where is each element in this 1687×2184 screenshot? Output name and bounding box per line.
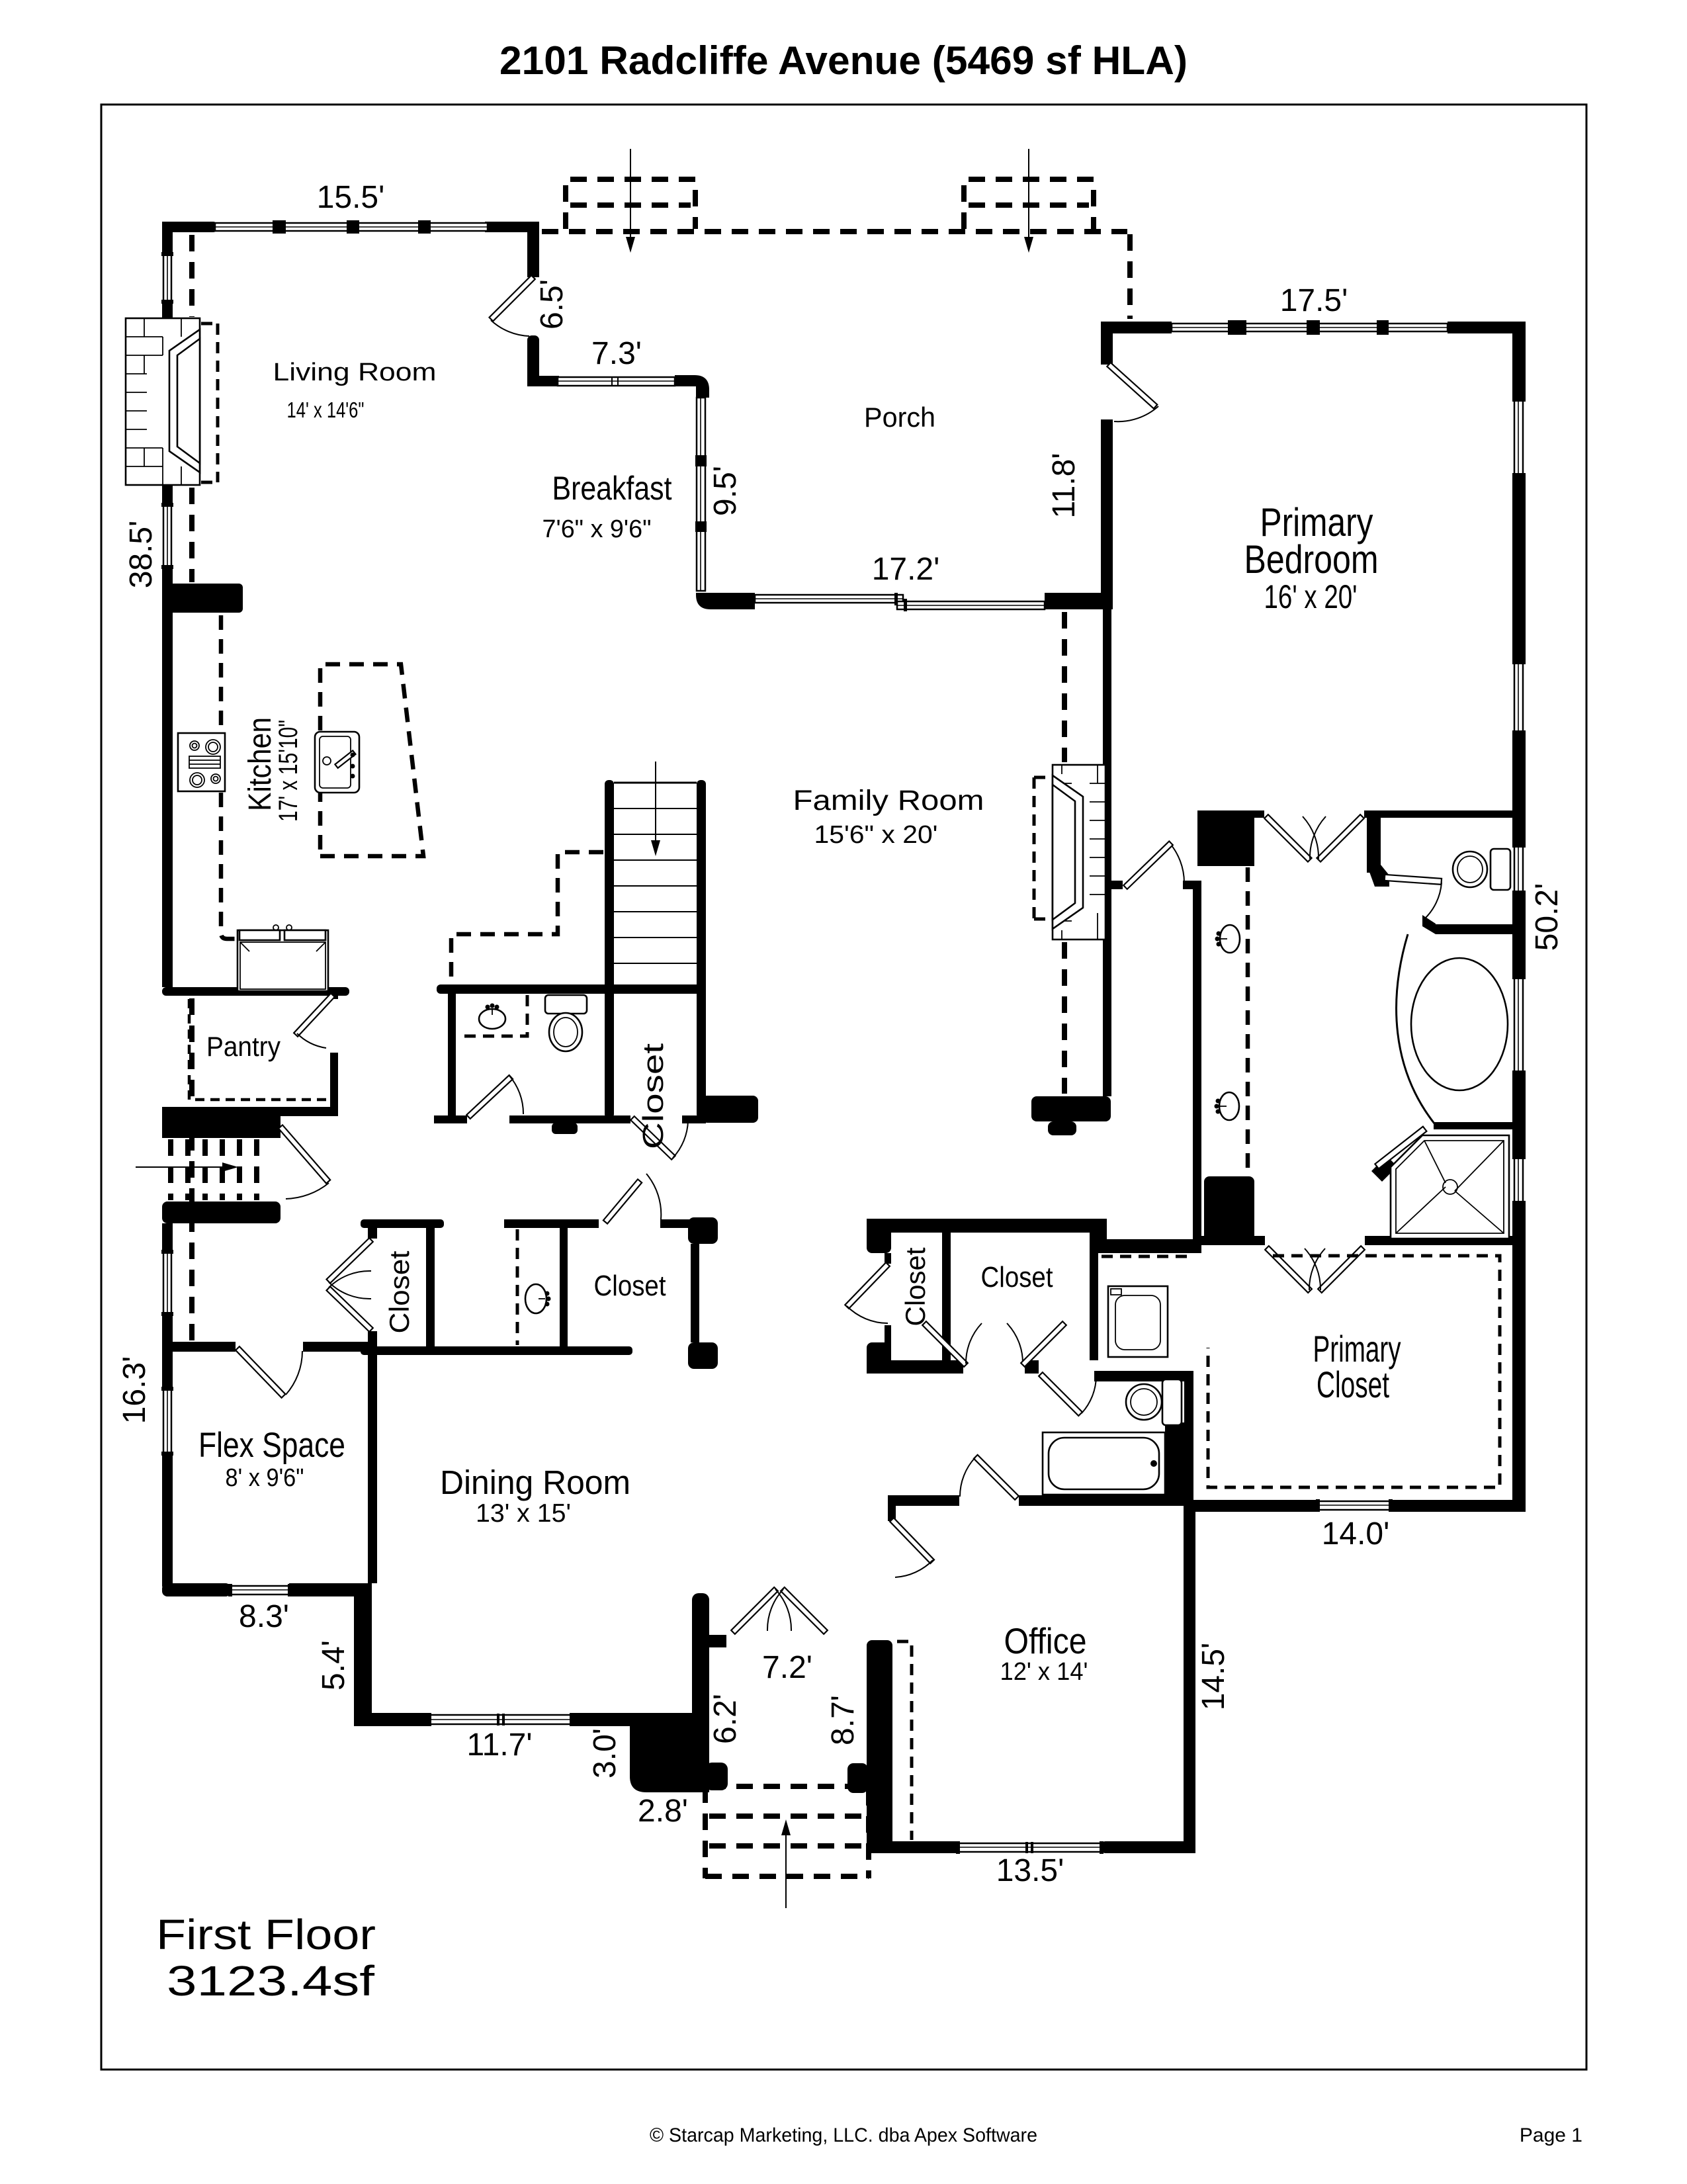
- svg-text:Closet: Closet: [900, 1247, 931, 1326]
- svg-text:Dining Room: Dining Room: [440, 1463, 630, 1501]
- svg-text:7.2': 7.2': [762, 1650, 812, 1685]
- svg-text:15.5': 15.5': [317, 180, 385, 215]
- svg-text:17.2': 17.2': [872, 552, 940, 587]
- svg-text:Breakfast: Breakfast: [552, 470, 672, 507]
- svg-text:Page 1: Page 1: [1520, 2124, 1582, 2146]
- svg-text:7.3': 7.3': [591, 336, 642, 371]
- svg-text:8.3': 8.3': [239, 1599, 289, 1634]
- svg-text:14' x 14'6": 14' x 14'6": [287, 398, 365, 422]
- svg-text:Living Room: Living Room: [273, 359, 437, 386]
- svg-text:17.5': 17.5': [1280, 283, 1348, 318]
- svg-text:14.5': 14.5': [1196, 1643, 1231, 1711]
- svg-text:Office: Office: [1004, 1620, 1087, 1661]
- svg-text:2.8': 2.8': [638, 1794, 688, 1829]
- svg-text:Flex Space: Flex Space: [198, 1426, 345, 1465]
- svg-text:16' x 20': 16' x 20': [1264, 578, 1358, 615]
- svg-text:Pantry: Pantry: [206, 1031, 281, 1062]
- svg-text:13.5': 13.5': [996, 1853, 1064, 1888]
- svg-text:Kitchen: Kitchen: [243, 717, 278, 811]
- svg-text:7'6" x 9'6": 7'6" x 9'6": [542, 515, 652, 543]
- svg-text:17' x 15'10": 17' x 15'10": [274, 720, 303, 822]
- svg-text:© Starcap Marketing, LLC. dba: © Starcap Marketing, LLC. dba Apex Softw…: [650, 2124, 1037, 2146]
- svg-text:11.8': 11.8': [1047, 453, 1082, 518]
- svg-text:Porch: Porch: [864, 402, 935, 433]
- svg-text:5.4': 5.4': [316, 1640, 351, 1690]
- svg-text:Closet: Closet: [1317, 1364, 1389, 1405]
- svg-text:Closet: Closet: [384, 1250, 415, 1333]
- svg-text:6.5': 6.5': [535, 279, 570, 329]
- svg-text:6.2': 6.2': [708, 1694, 743, 1744]
- svg-text:3123.4sf: 3123.4sf: [167, 1957, 374, 2005]
- svg-text:Family Room: Family Room: [793, 785, 984, 816]
- svg-text:15'6" x 20': 15'6" x 20': [814, 821, 938, 849]
- svg-text:13' x 15': 13' x 15': [476, 1499, 571, 1528]
- svg-text:38.5': 38.5': [124, 521, 159, 589]
- svg-text:Bedroom: Bedroom: [1244, 537, 1379, 582]
- svg-text:8.7': 8.7': [826, 1695, 861, 1745]
- svg-text:12' x 14': 12' x 14': [1000, 1658, 1088, 1686]
- svg-text:50.2': 50.2': [1530, 883, 1565, 951]
- svg-text:Closet: Closet: [594, 1270, 666, 1302]
- svg-text:16.3': 16.3': [117, 1356, 152, 1424]
- svg-text:Closet: Closet: [637, 1043, 670, 1149]
- svg-text:8' x 9'6": 8' x 9'6": [226, 1464, 304, 1492]
- svg-text:14.0': 14.0': [1322, 1516, 1390, 1551]
- svg-text:2101 Radcliffe Avenue (5469 sf: 2101 Radcliffe Avenue (5469 sf HLA): [499, 38, 1188, 83]
- svg-text:11.7': 11.7': [466, 1727, 532, 1763]
- svg-text:Closet: Closet: [981, 1261, 1053, 1293]
- svg-text:9.5': 9.5': [708, 466, 743, 516]
- svg-text:3.0': 3.0': [587, 1728, 623, 1778]
- svg-text:First Floor: First Floor: [156, 1911, 376, 1958]
